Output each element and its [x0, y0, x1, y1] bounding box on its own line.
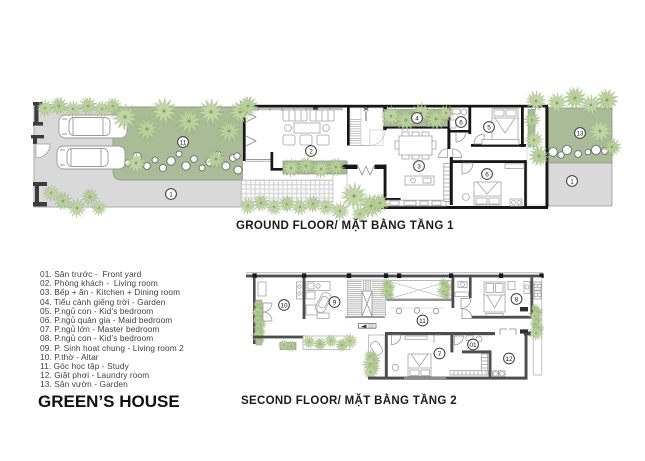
svg-text:6: 6: [485, 171, 489, 178]
svg-text:11: 11: [419, 318, 426, 325]
svg-text:8: 8: [515, 296, 519, 303]
svg-text:6: 6: [459, 119, 463, 126]
svg-text:01: 01: [469, 342, 477, 349]
svg-text:1: 1: [169, 191, 173, 198]
svg-text:7: 7: [438, 351, 442, 358]
svg-text:5: 5: [487, 124, 491, 131]
svg-text:12: 12: [505, 356, 513, 363]
svg-text:4: 4: [415, 115, 419, 122]
svg-text:13: 13: [576, 130, 584, 137]
svg-text:3: 3: [417, 163, 421, 170]
svg-text:11: 11: [180, 139, 187, 146]
svg-text:1: 1: [570, 178, 574, 185]
svg-text:2: 2: [309, 148, 313, 155]
svg-text:9: 9: [333, 299, 337, 306]
svg-text:10: 10: [280, 302, 288, 309]
